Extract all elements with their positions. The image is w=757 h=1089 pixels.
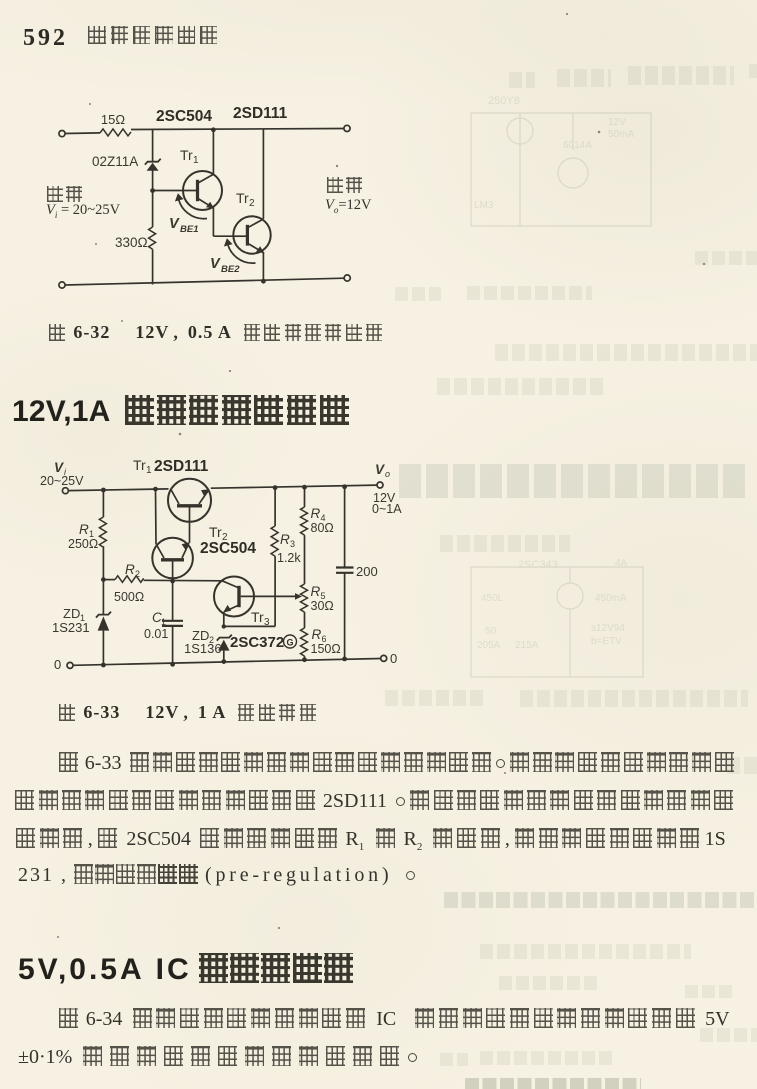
svg-text:Tr: Tr <box>236 190 249 206</box>
svg-text:30Ω: 30Ω <box>311 599 334 613</box>
svg-text:450L: 450L <box>481 593 504 604</box>
svg-text:2SC504: 2SC504 <box>200 540 256 557</box>
svg-text:12V: 12V <box>608 117 626 128</box>
svg-text:0.01: 0.01 <box>144 627 168 641</box>
svg-text:200: 200 <box>356 564 378 579</box>
svg-text:Tr: Tr <box>133 457 146 473</box>
svg-text:6014A: 6014A <box>563 140 592 151</box>
svg-text:2SC372: 2SC372 <box>230 634 284 651</box>
svg-text:R: R <box>79 522 89 537</box>
svg-text:1.2k: 1.2k <box>277 551 301 565</box>
svg-text:0: 0 <box>390 651 397 666</box>
svg-text:2: 2 <box>135 569 140 579</box>
svg-text:0: 0 <box>54 657 61 672</box>
svg-text:50: 50 <box>485 626 497 637</box>
svg-text:1: 1 <box>161 617 166 627</box>
svg-text:V: V <box>54 460 64 475</box>
svg-text:1S231: 1S231 <box>52 620 90 635</box>
svg-text:R: R <box>280 532 290 547</box>
svg-text:205A: 205A <box>477 640 501 651</box>
svg-text:Tr: Tr <box>251 609 264 625</box>
svg-text:150Ω: 150Ω <box>311 642 341 656</box>
svg-text:R: R <box>311 584 321 599</box>
svg-text:b=ETV: b=ETV <box>591 636 622 647</box>
svg-text:450mA: 450mA <box>595 593 627 604</box>
svg-text:2SC343: 2SC343 <box>518 559 558 571</box>
svg-text:500Ω: 500Ω <box>114 590 144 604</box>
svg-text:BE2: BE2 <box>221 264 240 275</box>
svg-text:2SC504: 2SC504 <box>156 108 212 125</box>
svg-text:80Ω: 80Ω <box>311 521 334 535</box>
svg-text:215A: 215A <box>515 640 539 651</box>
svg-text:R: R <box>125 562 135 577</box>
svg-text:Tr: Tr <box>180 147 193 163</box>
svg-text:ZD: ZD <box>63 606 80 621</box>
svg-text:1S136: 1S136 <box>184 641 222 656</box>
svg-text:250Y8: 250Y8 <box>488 95 520 107</box>
svg-text:Tr: Tr <box>209 524 222 540</box>
svg-text:1: 1 <box>146 465 152 476</box>
svg-text:R: R <box>312 627 322 642</box>
svg-text:LM3: LM3 <box>474 200 494 211</box>
svg-text:V: V <box>375 462 385 477</box>
svg-text:BE1: BE1 <box>180 224 198 235</box>
svg-text:15Ω: 15Ω <box>101 112 125 127</box>
svg-text:R: R <box>311 506 321 521</box>
svg-text:G: G <box>286 638 293 648</box>
svg-text:4A: 4A <box>615 558 628 569</box>
svg-text:330Ω: 330Ω <box>115 235 148 250</box>
svg-text:20~25V: 20~25V <box>40 474 84 488</box>
svg-text:02Z11A: 02Z11A <box>92 154 138 169</box>
svg-text:1: 1 <box>193 155 199 166</box>
svg-text:0~1A: 0~1A <box>372 502 402 516</box>
svg-text:3: 3 <box>290 539 295 549</box>
svg-text:V: V <box>210 256 221 272</box>
svg-text:s12V94: s12V94 <box>591 623 625 634</box>
svg-text:250Ω: 250Ω <box>68 537 98 551</box>
svg-text:2SD111: 2SD111 <box>233 105 288 122</box>
svg-text:V: V <box>169 216 180 232</box>
svg-text:2SD111: 2SD111 <box>154 458 209 475</box>
svg-text:2: 2 <box>249 198 255 209</box>
svg-text:o: o <box>385 469 390 479</box>
svg-text:50mA: 50mA <box>608 129 634 140</box>
